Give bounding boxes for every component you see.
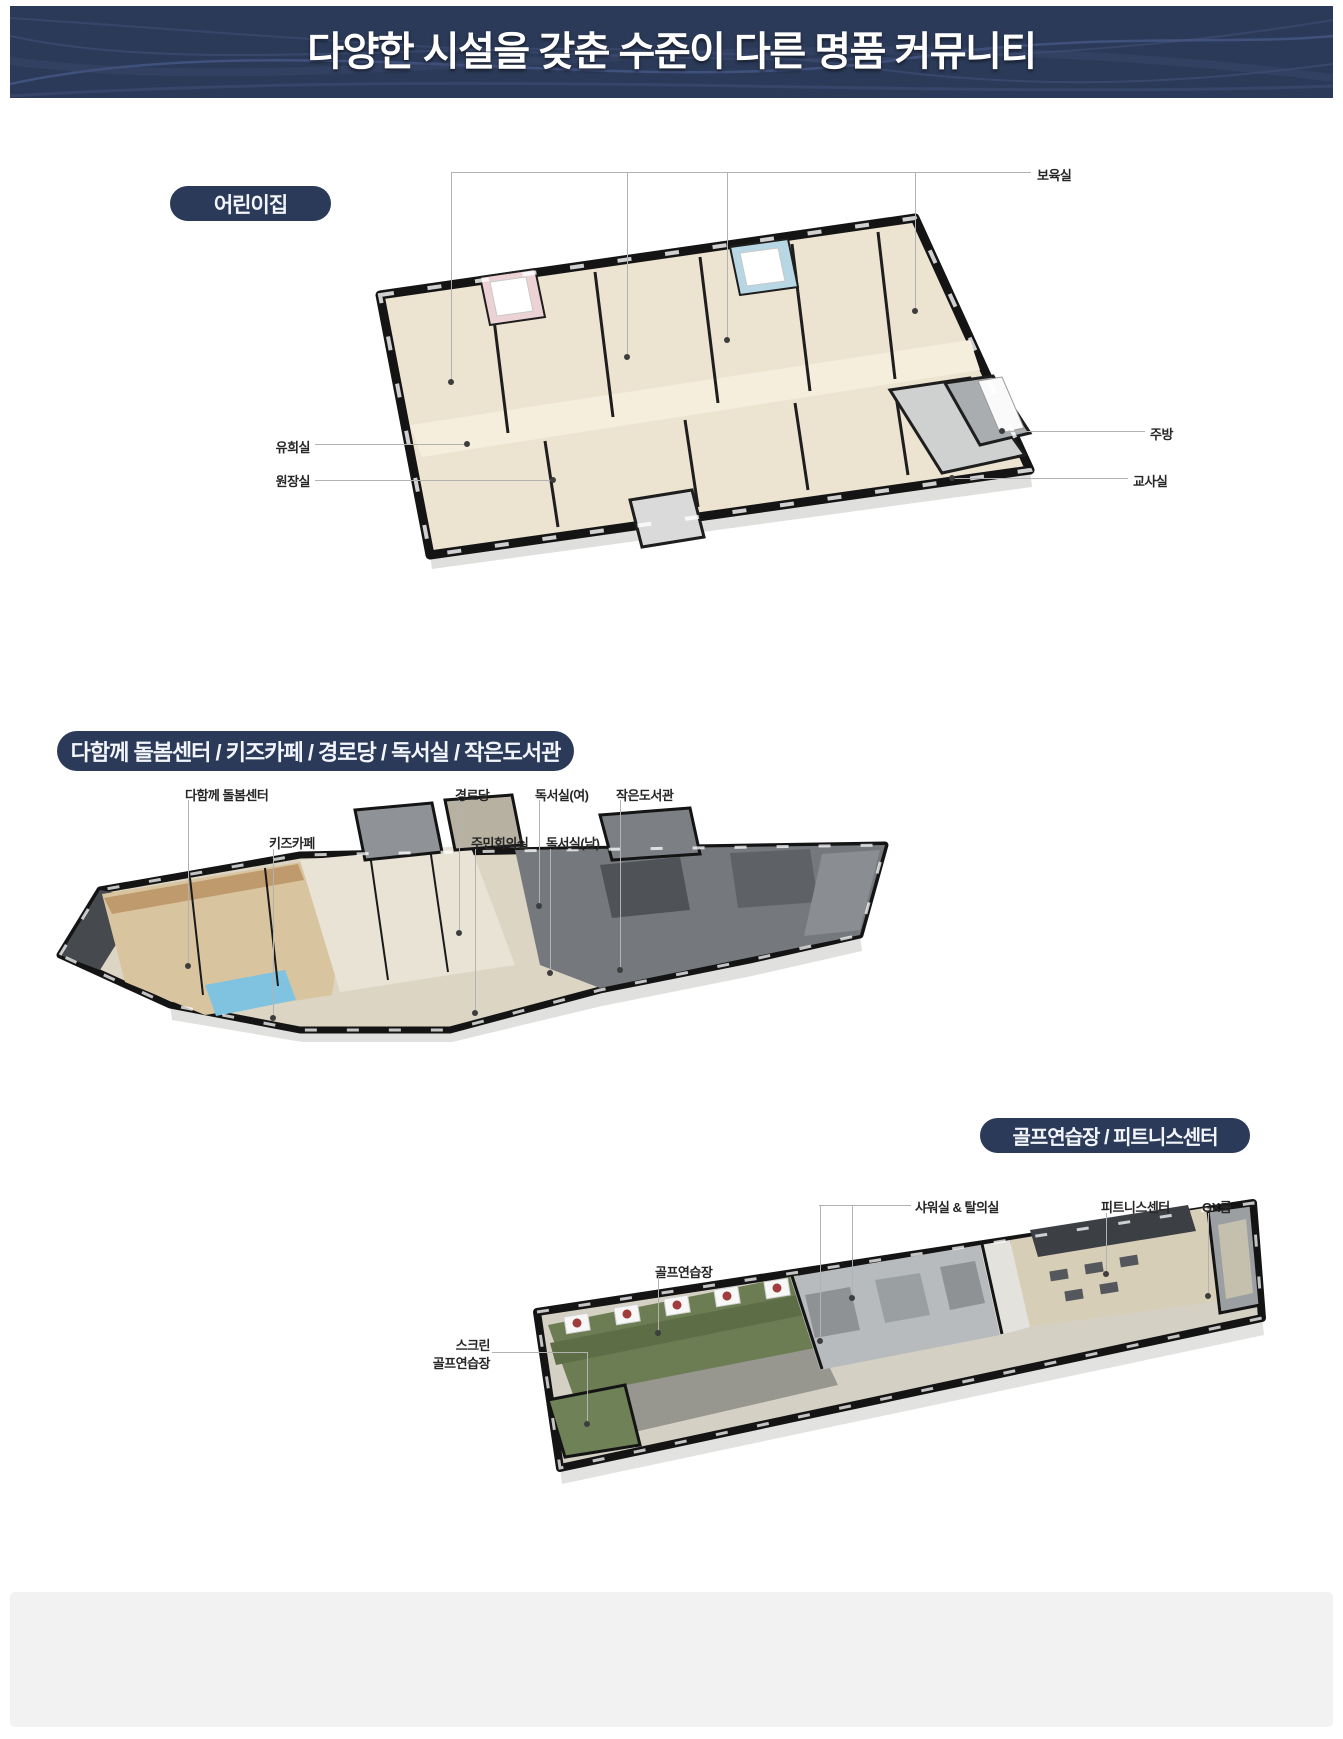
playroom-label: 유희실 [230,437,310,456]
leader-line [1106,1213,1107,1274]
leader-dot [270,1015,276,1021]
leader-line [188,800,189,966]
leader-dot [617,967,623,973]
leader-dot [949,475,955,481]
leader-line [727,172,728,341]
directors-office-label: 원장실 [230,471,310,490]
kids-cafe-label: 키즈카페 [269,833,315,852]
daycare-floorplan [330,165,1040,570]
golf-range-label: 골프연습장 [655,1262,712,1281]
leader-dot [472,1010,478,1016]
leader-dot [912,308,918,314]
leader-line [273,849,274,1018]
shower-locker-label: 샤워실 & 탈의실 [915,1197,999,1216]
leader-line [475,849,476,1013]
page-header: 다양한 시설을 갖춘 수준이 다른 명품 커뮤니티 [10,6,1333,98]
residents-meeting-room-label: 주민회의실 [471,833,528,852]
leader-line [820,1205,821,1341]
leader-line [459,800,460,933]
fitness-center-label: 피트니스센터 [1101,1197,1170,1216]
leader-line [658,1277,659,1333]
page-title: 다양한 시설을 갖춘 수준이 다른 명품 커뮤니티 [10,6,1333,98]
leader-dot [448,379,454,385]
leader-line [492,1352,587,1353]
leader-dot [456,930,462,936]
leader-line [451,172,1031,173]
kitchen-label: 주방 [1150,424,1173,443]
leader-line [1208,1213,1209,1296]
leader-line [539,800,540,906]
teachers-room-label: 교사실 [1133,471,1167,490]
community-badge: 다함께 돌봄센터 / 키즈카페 / 경로당 / 독서실 / 작은도서관 [57,731,574,771]
nursery-room-label: 보육실 [1037,165,1071,184]
leader-line [819,1205,911,1206]
leader-dot [584,1421,590,1427]
reading-room-men-label: 독서실(남) [546,833,600,852]
care-center-label: 다함께 돌봄센터 [185,785,268,804]
leader-line [315,480,553,481]
disclaimer-box: ! ※ 상기 CG는 소비자의 이해를 돕기 위한 것으로 실제와 차이가 날 … [10,1592,1333,1727]
community-facilities-page: 다양한 시설을 갖춘 수준이 다른 명품 커뮤니티 어린이집 [0,0,1343,1739]
leader-line [620,800,621,970]
leader-dot [464,441,470,447]
senior-center-label: 경로당 [455,785,489,804]
golf-fitness-building [537,1203,1264,1484]
leader-dot [817,1338,823,1344]
leader-line [550,849,551,973]
leader-line [1005,431,1145,432]
screen-golf-label-line1: 스크린 [456,1338,490,1353]
golf-fitness-badge: 골프연습장 / 피트니스센터 [980,1118,1250,1153]
leader-line [315,444,467,445]
leader-dot [849,1295,855,1301]
small-library-label: 작은도서관 [616,785,673,804]
leader-line [587,1352,588,1424]
reading-room-women-label: 독서실(여) [535,785,589,804]
leader-dot [724,337,730,343]
leader-line [451,172,452,383]
golf-fitness-floorplan [520,1195,1280,1485]
leader-dot [185,963,191,969]
community-floorplan [40,790,940,1042]
leader-dot [655,1330,661,1336]
screen-golf-label-line2: 골프연습장 [433,1356,490,1371]
screen-golf-label: 스크린 골프연습장 [405,1337,490,1373]
leader-line [955,478,1128,479]
leader-dot [547,970,553,976]
daycare-badge: 어린이집 [170,186,331,221]
leader-dot [550,477,556,483]
leader-line [627,172,628,358]
leader-dot [536,903,542,909]
leader-dot [999,428,1005,434]
daycare-building [380,218,1032,569]
leader-dot [1205,1293,1211,1299]
leader-line [852,1205,853,1298]
gx-room-label: GX룸 [1202,1197,1231,1216]
leader-line [915,172,916,312]
leader-dot [624,354,630,360]
leader-dot [1103,1271,1109,1277]
